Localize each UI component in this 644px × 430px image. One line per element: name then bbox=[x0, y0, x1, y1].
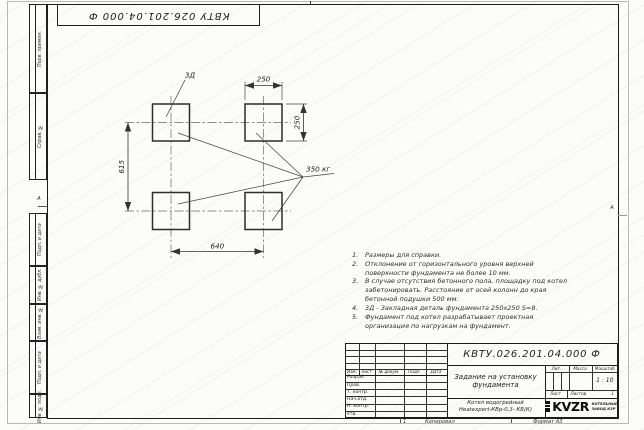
col-docnum: № докум. bbox=[375, 369, 404, 375]
kvzr-logo-icon bbox=[545, 401, 550, 412]
mass-label: Масса bbox=[569, 365, 592, 372]
notes-list: 1. Размеры для справки. 2. Отклонение от… bbox=[352, 251, 570, 330]
stamp-perv-primen: Перв. примен. bbox=[29, 4, 47, 93]
note-item: 2. Отклонение от горизонтального уровня … bbox=[352, 260, 570, 278]
footer-sheet-mark: 1 bbox=[403, 419, 406, 425]
row-prov: Пров. bbox=[346, 382, 376, 389]
note-item: 5. Фундамент под котел разрабатывает про… bbox=[352, 313, 570, 331]
leader-lines bbox=[166, 80, 334, 221]
foundation-plan-drawing: 250 250 615 640 3Д 350 кг bbox=[80, 60, 350, 265]
dim-right-250: 250 bbox=[293, 115, 302, 129]
product-name: Котел водогрейный Heatexpert-КВр-0,3- КБ… bbox=[447, 398, 545, 417]
note-item: 3. В случае отсутствия бетонного пола, п… bbox=[352, 277, 570, 303]
sheet-label: Лист bbox=[545, 390, 567, 398]
stamp-podp-data-1: Подп. и дата bbox=[29, 213, 47, 266]
kvzr-logo-text: KVZR bbox=[552, 399, 589, 414]
dim-left-615: 615 bbox=[117, 160, 126, 174]
row-nachotd: Нач.отд. bbox=[346, 396, 376, 403]
stamp-vzam-inv: Взам. инв. № bbox=[29, 304, 47, 341]
row-tkontr: Т. контр. bbox=[346, 389, 376, 396]
format-label: Формат А3 bbox=[533, 419, 563, 425]
sheets-value: 1 bbox=[611, 391, 614, 396]
document-designation: КВТУ.026.201.04.000 Ф bbox=[447, 344, 618, 365]
row-utv: Утв. bbox=[346, 411, 376, 418]
zone-tick-right bbox=[618, 215, 627, 216]
dim-bottom-640: 640 bbox=[210, 242, 224, 251]
load-label: 350 кг bbox=[306, 165, 330, 174]
company-logo: KVZR КОТЕЛЬНЫЙ ЗАВОД КЗР bbox=[545, 398, 619, 417]
sheets-cell: Листов 1 bbox=[567, 390, 619, 398]
note-item: 4. 3Д - Закладная деталь фундамента 250х… bbox=[352, 304, 570, 313]
extension-lines bbox=[245, 82, 307, 141]
top-designation-box: КВТУ 026.201.04.000 Ф bbox=[57, 4, 260, 26]
scale-value: 1 : 10 bbox=[592, 372, 619, 390]
row-razrab: Разраб. bbox=[346, 375, 376, 382]
note-item: 1. Размеры для справки. bbox=[352, 251, 570, 260]
top-designation-text: КВТУ 026.201.04.000 Ф bbox=[88, 10, 230, 21]
zone-marker-right: А bbox=[610, 205, 614, 211]
drawing-sheet: КВТУ 026.201.04.000 Ф Перв. примен. Спра… bbox=[0, 0, 644, 430]
zone-marker-left: А bbox=[37, 196, 41, 202]
centerlines bbox=[125, 96, 291, 258]
dimension-lines bbox=[128, 86, 304, 252]
stamp-inv-dubl: Инв. № дубл. bbox=[29, 266, 47, 304]
row-nkontr: Н. контр. bbox=[346, 404, 376, 411]
copied-label: Копировал bbox=[425, 419, 455, 425]
company-name: КОТЕЛЬНЫЙ ЗАВОД КЗР bbox=[592, 402, 618, 411]
title-block: Изм. Лист № докум. Подп. Дата Разраб. Пр… bbox=[345, 343, 619, 418]
stamp-sprav-no: Справ. № bbox=[29, 93, 47, 180]
col-podp: Подп. bbox=[404, 369, 426, 375]
stamp-podp-data-2: Подп. и дата bbox=[29, 341, 47, 394]
zone-tick-left bbox=[38, 206, 47, 207]
top-centering-mark bbox=[310, 1, 311, 5]
dim-top-250: 250 bbox=[257, 75, 271, 84]
col-data: Дата bbox=[426, 369, 447, 375]
lit-label: Лит. bbox=[545, 365, 569, 372]
document-title: Задание на установку фундамента bbox=[447, 365, 545, 398]
embed-detail-label: 3Д bbox=[185, 71, 196, 80]
stamp-inv-podl: Инв. № подл. bbox=[29, 394, 47, 418]
